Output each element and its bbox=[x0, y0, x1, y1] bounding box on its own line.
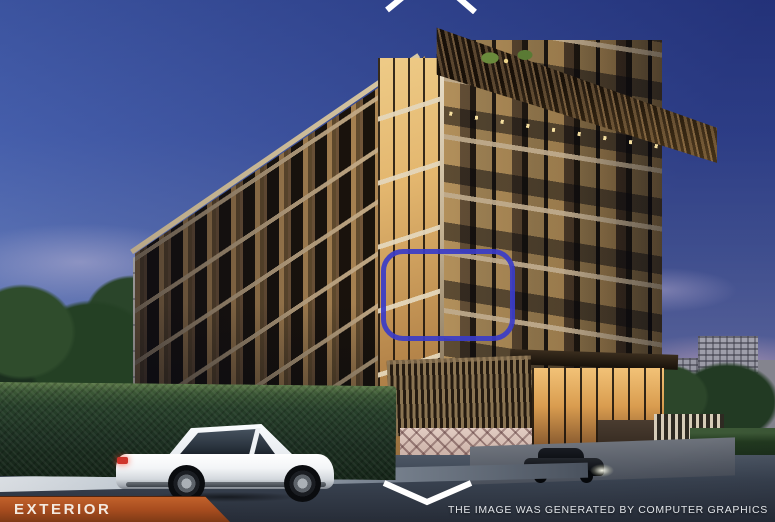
cg-disclaimer-text: THE IMAGE WAS GENERATED BY COMPUTER GRAP… bbox=[448, 504, 768, 516]
podium-louvers bbox=[387, 356, 534, 437]
highlight-annotation-box[interactable] bbox=[381, 249, 515, 341]
car-wheel-front bbox=[284, 465, 321, 502]
white-sports-car bbox=[116, 424, 336, 504]
chevron-up-icon[interactable] bbox=[383, 0, 479, 14]
exterior-render-view: EXTERIOR THE IMAGE WAS GENERATED BY COMP… bbox=[0, 0, 775, 522]
car-taillight bbox=[117, 457, 128, 464]
section-tab-label: EXTERIOR bbox=[0, 497, 111, 522]
headlight-glow bbox=[590, 464, 614, 477]
chevron-down-icon[interactable] bbox=[380, 479, 476, 507]
section-tab-exterior[interactable]: EXTERIOR bbox=[0, 496, 230, 522]
rooftop-plants bbox=[470, 46, 560, 68]
